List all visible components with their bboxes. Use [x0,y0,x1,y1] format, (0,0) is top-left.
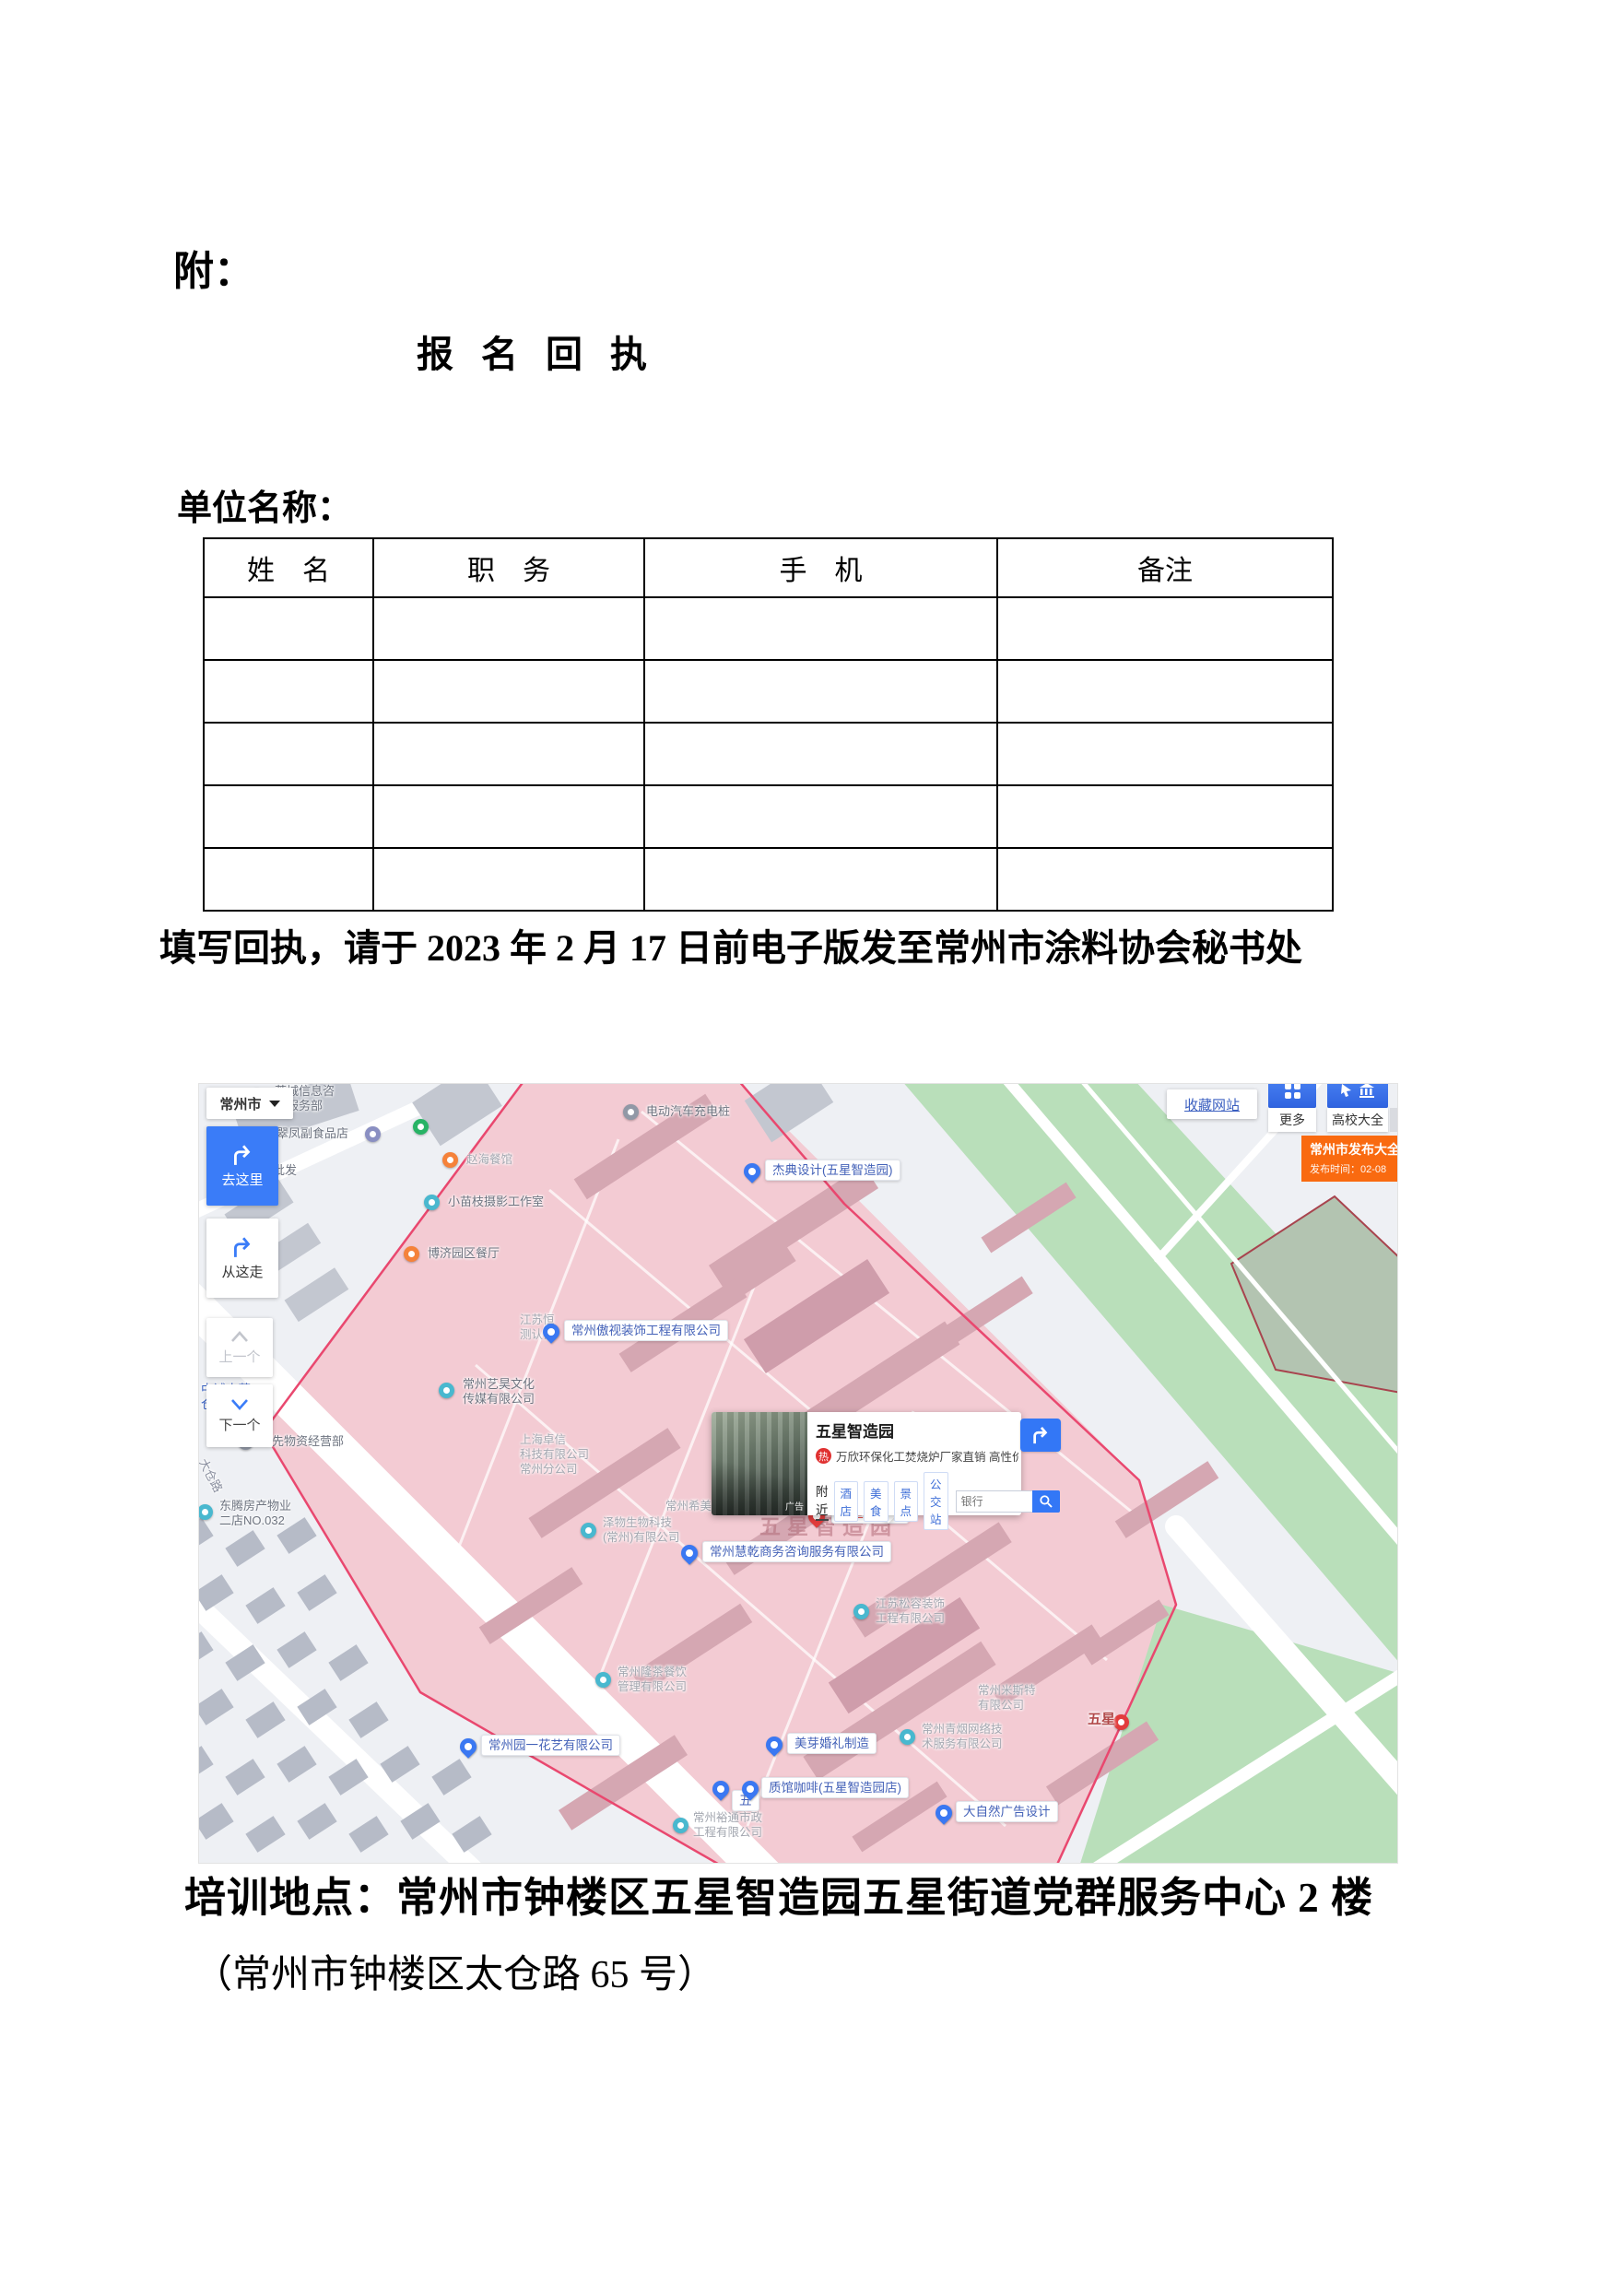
circle-grey-pin-icon[interactable] [623,1104,639,1120]
poi-label-wuxing-corner: 五星 [1088,1713,1115,1727]
previous-label: 上一个 [218,1347,260,1366]
poi-label-huiqian-biz[interactable]: 常州慧乾商务咨询服务有限公司 [702,1541,891,1562]
search-icon [1039,1494,1053,1509]
table-cell-empty [997,785,1333,848]
signup-table: 姓 名职 务手 机备注 [203,537,1334,912]
turn-arrow-icon [230,1236,254,1258]
poi-label-shanghai-zhuo: 上海卓信科技有限公司常州分公司 [520,1432,589,1477]
card-tabs: 附近酒店美食景点公交站 [816,1472,1060,1530]
ad-banner-time: 发布时间：02-08 [1310,1161,1397,1176]
table-cell-empty [644,723,997,785]
poi-label-longcha-catering: 常州隆茶餐饮管理有限公司 [618,1665,687,1694]
poi-label-zhiguan-coffee[interactable]: 质馆咖啡(五星智造园店) [761,1777,909,1798]
grid-icon [1285,1083,1300,1099]
address-line: （常州市钟楼区太仓路 65 号） [194,1943,716,1999]
circle-orange-pin-icon[interactable] [442,1152,458,1168]
poi-label-yihao-culture: 常州艺昊文化传媒有限公司 [463,1377,535,1407]
poi-label-dongteng-house: 东腾房产物业二店NO.032 [219,1499,291,1528]
poi-photo[interactable]: 广告 [712,1412,807,1515]
directions-button[interactable] [1020,1419,1061,1452]
training-location-line: 培训地点：常州市钟楼区五星智造园五星街道党群服务中心 2 楼 [184,1864,1373,1924]
colleges-label[interactable]: 高校大全 [1327,1108,1388,1132]
poi-label-misite: 常州米斯特有限公司 [978,1683,1036,1713]
table-row [204,723,1333,785]
table-header-cell: 手 机 [644,538,997,597]
go-here-label: 去这里 [221,1170,263,1189]
poi-label-meiya-wedding[interactable]: 美芽婚礼制造 [787,1733,877,1754]
table-row [204,848,1333,911]
poi-label-zewu-bio: 泽物生物科技(常州)有限公司 [603,1515,679,1545]
map[interactable]: 常州市 去这里 从这走 上一个 下一个 [198,1083,1398,1864]
card-tab-公交站[interactable]: 公交站 [924,1472,948,1530]
circle-green-pin-icon[interactable] [413,1119,429,1135]
poi-label-songrong-deco: 江苏松容装饰工程有限公司 [876,1596,945,1626]
table-cell-empty [997,597,1333,660]
document-page: 附： 报 名 回 执 单位名称： 姓 名职 务手 机备注 填写回执，请于 202… [0,0,1624,2296]
note-line: 填写回执，请于 2023 年 2 月 17 日前电子版发至常州市涂料协会秘书处 [159,918,1302,971]
cursor-icon [1340,1083,1355,1098]
city-selector-label: 常州市 [219,1094,261,1113]
card-tab-酒店[interactable]: 酒店 [834,1481,859,1522]
circle-teal-pin-icon[interactable] [673,1818,688,1833]
building-icon [1359,1083,1375,1098]
poi-info-card: 广告 五星智造园 热 万欣环保化工焚烧炉厂家直销 高性价比_工... -广告 [712,1412,1021,1515]
table-cell-empty [204,785,373,848]
table-row [204,785,1333,848]
poi-label-aoshi-deco[interactable]: 常州傲视装饰工程有限公司 [564,1320,728,1341]
table-cell-empty [644,785,997,848]
table-header-cell: 姓 名 [204,538,373,597]
table-cell-empty [644,660,997,723]
attachment-label: 附： [173,238,254,297]
edge-widget [1390,1108,1398,1132]
favorite-site-button[interactable]: 收藏网站 [1167,1089,1257,1119]
search-input[interactable] [956,1490,1032,1513]
table-row [204,597,1333,660]
table-cell-empty [373,597,644,660]
table-cell-empty [204,723,373,785]
poi-label-yutong-eng: 常州裕通市政工程有限公司 [693,1810,762,1840]
table-header-cell: 职 务 [373,538,644,597]
poi-label-jiedian-design[interactable]: 杰典设计(五星智造园) [765,1160,900,1181]
poi-label-daziran-ad[interactable]: 大自然广告设计 [956,1801,1058,1822]
poi-label-yuanyi-flower[interactable]: 常州园一花艺有限公司 [481,1735,620,1756]
chevron-down-icon [269,1101,280,1107]
circle-teal-pin-icon[interactable] [424,1195,440,1210]
from-here-label: 从这走 [221,1262,263,1281]
poi-label-cuifeng-store: 翠凤副食品店 [277,1126,348,1141]
favorite-site-label: 收藏网站 [1184,1095,1240,1114]
card-tab-景点[interactable]: 景点 [894,1481,919,1522]
circle-purple-pin-icon[interactable] [365,1126,381,1142]
table-cell-empty [373,848,644,911]
hot-badge: 热 [816,1448,831,1464]
poi-label-qingyan-network: 常州青烟网络技术服务有限公司 [922,1722,1003,1751]
next-label: 下一个 [218,1415,260,1434]
unit-name-label: 单位名称： [177,479,352,530]
circle-teal-pin-icon[interactable] [595,1672,611,1688]
table-cell-empty [997,660,1333,723]
poi-label-zhaohai: 赵海餐馆 [466,1152,512,1167]
from-here-button[interactable]: 从这走 [206,1219,278,1298]
poi-label-ev-charging: 电动汽车充电桩 [646,1104,730,1119]
table-cell-empty [373,785,644,848]
table-cell-empty [997,723,1333,785]
ad-banner[interactable]: 常州市发布大全 发布时间：02-08 [1301,1136,1397,1182]
search-button[interactable] [1032,1490,1060,1513]
go-here-button[interactable]: 去这里 [206,1126,278,1206]
chevron-down-icon [229,1398,251,1411]
city-selector[interactable]: 常州市 [206,1088,293,1119]
card-tab-美食[interactable]: 美食 [864,1481,888,1522]
circle-red-pin-icon[interactable] [1113,1714,1129,1730]
ad-text: 万欣环保化工焚烧炉厂家直销 高性价比_工... [836,1447,1018,1465]
table-cell-empty [204,597,373,660]
table-row [204,660,1333,723]
table-cell-empty [373,723,644,785]
previous-button[interactable]: 上一个 [206,1318,273,1377]
circle-teal-pin-icon[interactable] [853,1604,869,1619]
table-cell-empty [644,848,997,911]
table-cell-empty [373,660,644,723]
circle-teal-pin-icon[interactable] [581,1523,596,1538]
page-title: 报 名 回 执 [417,324,656,378]
more-apps-button[interactable] [1268,1083,1316,1108]
circle-teal-pin-icon[interactable] [900,1729,915,1745]
photo-ad-tag: 广告 [785,1499,804,1513]
turn-arrow-icon [230,1144,254,1166]
poi-label-xiaomiaozhi: 小苗枝摄影工作室 [448,1195,544,1209]
ad-link[interactable]: 热 万欣环保化工焚烧炉厂家直销 高性价比_工... -广告 [816,1447,1018,1465]
ad-banner-title: 常州市发布大全 [1310,1140,1397,1159]
table-header-cell: 备注 [997,538,1333,597]
more-apps-label[interactable]: 更多 [1268,1108,1316,1132]
card-tab-附近[interactable]: 附近 [816,1481,829,1521]
next-button[interactable]: 下一个 [206,1384,273,1447]
table-cell-empty [997,848,1333,911]
poi-label-bojiyuanqu: 博济园区餐厅 [428,1246,500,1261]
circle-orange-pin-icon[interactable] [404,1246,419,1262]
chevron-up-icon [229,1330,251,1343]
colleges-button[interactable] [1327,1083,1388,1108]
directions-icon [1030,1426,1051,1444]
table-cell-empty [204,660,373,723]
circle-teal-pin-icon[interactable] [439,1383,454,1398]
table-header-row: 姓 名职 务手 机备注 [204,538,1333,597]
table-cell-empty [204,848,373,911]
table-cell-empty [644,597,997,660]
